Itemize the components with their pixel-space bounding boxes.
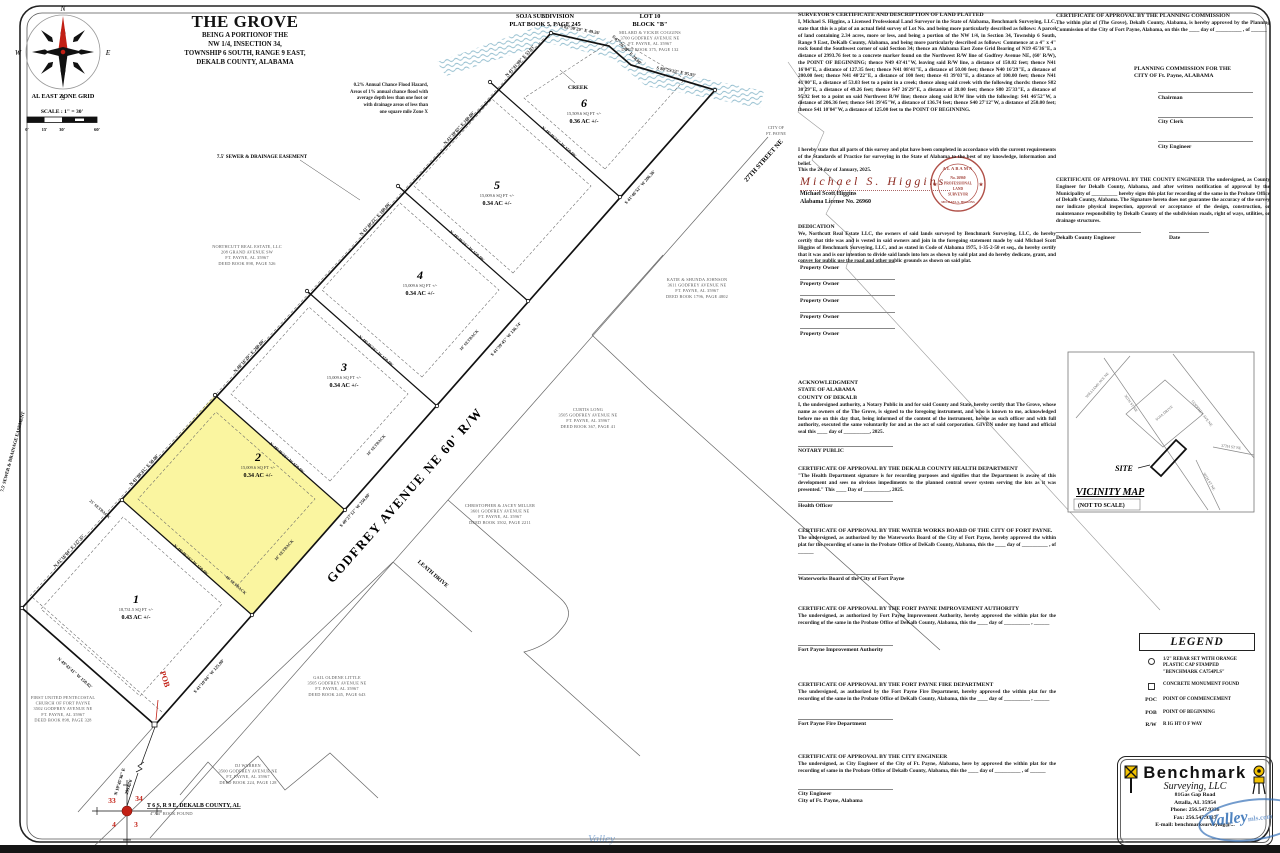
- property-owner-signatures: Property Owner Property Owner Property O…: [800, 262, 895, 337]
- svg-text:1: 1: [133, 592, 139, 606]
- svg-text:15,009.6 SQ FT +/-: 15,009.6 SQ FT +/-: [403, 283, 438, 289]
- svg-text:15': 15': [42, 127, 48, 132]
- svg-text:0.34 AC +/-: 0.34 AC +/-: [244, 473, 273, 479]
- svg-text:W: W: [15, 48, 22, 57]
- page-title: THE GROVE: [140, 12, 350, 32]
- svg-text:30': 30': [59, 127, 65, 132]
- svg-text:★: ★: [979, 182, 984, 188]
- svg-text:6: 6: [581, 96, 587, 110]
- svg-text:N 49°43'41" W 150.02': N 49°43'41" W 150.02': [57, 656, 94, 689]
- svg-text:10' SETBACK: 10' SETBACK: [365, 433, 387, 457]
- scale-bar: SCALE : 1" = 30' 0' 15' 30' 60': [25, 109, 100, 132]
- legend-item: POC POINT OF COMMENCEMENT: [1139, 697, 1255, 703]
- owner-label: NORTHCUTT REAL ESTATE, LLC208 GRAND AVEN…: [212, 244, 282, 267]
- legend-item: POB POINT OF BEGINNING: [1139, 710, 1255, 716]
- title-block: THE GROVE BEING A PORTIONOF THENW 1/4, I…: [140, 12, 350, 68]
- fire-dept-certificate: CERTIFICATE OF APPROVAL BY THE FORT PAYN…: [798, 682, 1056, 727]
- planning-commission-for: PLANNING COMMISSION FOR THE CITY OF Ft. …: [1134, 66, 1231, 81]
- legend-item: CONCRETE MONUMENT FOUND: [1139, 682, 1255, 691]
- svg-text:5: 5: [494, 178, 500, 192]
- legend-item: 1/2" REBAR SET WITH ORANGEPLASTIC CAP ST…: [1139, 657, 1255, 676]
- health-dept-certificate: CERTIFICATE OF APPROVAL BY THE DEKALB CO…: [798, 466, 1056, 509]
- svg-text:N 40°16'29" E 200.00': N 40°16'29" E 200.00': [232, 338, 265, 373]
- water-works-certificate: CERTIFICATE OF APPROVAL BY THE WATER WOR…: [798, 528, 1056, 582]
- survey-flag-icon: [1124, 765, 1138, 795]
- compass-rose: N S W E: [15, 4, 111, 102]
- svg-text:0.43 AC +/-: 0.43 AC +/-: [122, 615, 151, 621]
- svg-text:34: 34: [135, 794, 143, 803]
- svg-text:0.34 AC +/-: 0.34 AC +/-: [483, 201, 512, 207]
- svg-text:4: 4: [416, 268, 423, 282]
- soja-subdivision-label: SOJA SUBDIVISION: [516, 13, 574, 20]
- rebar-symbol: [1148, 658, 1155, 665]
- owner-label: GAIL OLDENE LITTLE3505 GODFREY AVENUE NE…: [308, 675, 367, 698]
- flood-hazard-note: 0.2% Annual Chance Flood Hazard,Areas of…: [320, 83, 428, 117]
- svg-text:4"X4" ROCK FOUND: 4"X4" ROCK FOUND: [150, 811, 193, 816]
- bearing-labels: N 49°43'41" W 150.02' N 41°16'04" E 127.…: [52, 24, 696, 695]
- plat-sheet: N S W E AL EAST ZONE GRID SCALE : 1" = 3…: [0, 0, 1280, 853]
- svg-text:N 48°49'56" W 150.00': N 48°49'56" W 150.00': [541, 125, 578, 158]
- section-num: 33: [108, 796, 116, 805]
- svg-text:MICHAEL S. HIGGINS: MICHAEL S. HIGGINS: [941, 200, 975, 204]
- owner-label: MILARD & VICKIE COGGINS3700 GODFREY AVEN…: [619, 30, 681, 53]
- watermark-fragment: Valley: [588, 833, 615, 845]
- surveyor-license: Alabama License No. 26960: [800, 198, 871, 206]
- svg-text:0.34 AC +/-: 0.34 AC +/-: [330, 383, 359, 389]
- svg-text:4: 4: [112, 820, 116, 829]
- vicinity-map: WILLIAMS AVE NE 36TH ST NE SOJA DRIVE GO…: [1068, 352, 1254, 512]
- section-corner-label: T 6 S, R 9 E, DEKALB COUNTY, AL: [147, 803, 241, 809]
- acknowledgment-section: ACKNOWLEDGMENT STATE OF ALABAMA COUNTY O…: [798, 380, 1056, 454]
- street-label-godfrey: GODFREY AVENUE NE 60' R/W: [324, 404, 486, 585]
- svg-text:25' SETBACK: 25' SETBACK: [88, 498, 112, 520]
- owner-label: CHRISTOPHER & JACEY MILLER3601 GODFREY A…: [465, 503, 535, 526]
- pob-label: POB: [158, 670, 172, 689]
- svg-text:N 48°49'56" W 150.00': N 48°49'56" W 150.00': [449, 229, 486, 262]
- planning-signature-lines: Chairman City Clerk City Engineer: [1158, 92, 1253, 150]
- svg-text:LAND: LAND: [953, 187, 964, 191]
- owner-label: FIRST UNITED PENTECOSTALCHURCH OF FORT P…: [31, 695, 95, 723]
- site-label: SITE: [1115, 464, 1133, 473]
- svg-text:3: 3: [134, 820, 138, 829]
- surveyor-signature: Michael S. Higgins: [800, 172, 950, 191]
- compass-label: AL EAST ZONE GRID: [32, 93, 95, 100]
- svg-text:0.36 AC +/-: 0.36 AC +/-: [570, 119, 599, 125]
- adjacent-owner-labels: MILARD & VICKIE COGGINS3700 GODFREY AVEN…: [31, 30, 728, 786]
- svg-text:15,009.6 SQ FT +/-: 15,009.6 SQ FT +/-: [480, 193, 515, 199]
- owner-label: KATIE & SHUNDA JOHNSON3611 GODFREY AVENU…: [666, 277, 728, 300]
- svg-text:15,509.6 SQ FT +/-: 15,509.6 SQ FT +/-: [567, 111, 602, 117]
- svg-text:SCALE : 1" = 30': SCALE : 1" = 30': [41, 109, 84, 115]
- easement-label: 7.5' SEWER & DRAINAGE EASEMENT: [217, 155, 308, 160]
- plat-drawing: N S W E AL EAST ZONE GRID SCALE : 1" = 3…: [0, 0, 1280, 853]
- section-heading: SURVEYOR'S CERTIFICATE AND DESCRIPTION O…: [798, 12, 1056, 19]
- total-station-icon: [1251, 764, 1267, 798]
- svg-text:SURVEYOR: SURVEYOR: [948, 193, 968, 197]
- owner-label: CURTIS LONG3505 GODFREY AVENUE NEFT. PAY…: [559, 407, 618, 430]
- legend: LEGEND 1/2" REBAR SET WITH ORANGEPLASTIC…: [1139, 633, 1255, 729]
- svg-text:15,009.6 SQ FT +/-: 15,009.6 SQ FT +/-: [327, 375, 362, 381]
- svg-text:N: N: [59, 4, 66, 13]
- creek-hatching: [437, 24, 764, 108]
- svg-text:0': 0': [25, 127, 29, 132]
- svg-text:0.34 AC +/-: 0.34 AC +/-: [406, 291, 435, 297]
- svg-text:No. 26960: No. 26960: [950, 176, 965, 180]
- svg-text:N 41°16'04" E 127.35': N 41°16'04" E 127.35': [52, 533, 85, 568]
- svg-text:E: E: [105, 48, 111, 57]
- monument-symbol: [1148, 683, 1155, 690]
- svg-text:60': 60': [94, 127, 100, 132]
- street-label-leath: LEATH DRIVE: [416, 559, 449, 589]
- scan-edge-bar: [0, 845, 1280, 853]
- svg-text:N 41°39'03" E 100.00': N 41°39'03" E 100.00': [442, 110, 475, 145]
- vicinity-title: VICINITY MAP: [1076, 487, 1145, 498]
- city-limit-label: CITY OF: [768, 125, 785, 130]
- legend-item: R/W R IG HT O F WAY: [1139, 722, 1255, 728]
- svg-text:N 48°49'56" W 150.00': N 48°49'56" W 150.00': [358, 334, 395, 367]
- svg-text:(NOT TO SCALE): (NOT TO SCALE): [1078, 502, 1125, 509]
- planning-commission-certificate: CERTIFICATE OF APPROVAL BY THE PLANNING …: [1056, 13, 1270, 34]
- surveyor-statement: I hereby state that all parts of this su…: [798, 147, 1056, 174]
- svg-text:18,731.5 SQ FT +/-: 18,731.5 SQ FT +/-: [119, 607, 154, 613]
- svg-text:FT. PAYNE: FT. PAYNE: [766, 131, 786, 136]
- improvement-authority-certificate: CERTIFICATE OF APPROVAL BY THE FORT PAYN…: [798, 606, 1056, 653]
- svg-text:3: 3: [340, 360, 347, 374]
- corner-monuments: [20, 31, 716, 727]
- creek-label: CREEK: [568, 85, 589, 91]
- surveyors-certificate: SURVEYOR'S CERTIFICATE AND DESCRIPTION O…: [798, 12, 1056, 114]
- svg-text:BLOCK "B": BLOCK "B": [633, 21, 668, 28]
- street-label-27th: 27TH STREET NE: [743, 138, 785, 184]
- owner-label: DJ WARREN3500 GODFREY AVENUE NEFT. PAYNE…: [219, 763, 278, 786]
- county-engineer-certificate: CERTIFICATE OF APPROVAL BY THE COUNTY EN…: [1056, 177, 1270, 241]
- svg-text:2: 2: [254, 450, 261, 464]
- city-engineer-certificate: CERTIFICATE OF APPROVAL BY THE CITY ENGI…: [798, 754, 1056, 804]
- easement-label-2: 7.5' SEWER & DRAINAGE EASEMENT: [0, 411, 26, 492]
- legend-title: LEGEND: [1139, 633, 1255, 651]
- subdivision-boundary: [22, 33, 715, 725]
- lot10-label: LOT 10: [640, 13, 661, 20]
- svg-text:2993.76': 2993.76': [124, 778, 134, 795]
- title-subtitle: BEING A PORTIONOF THENW 1/4, INSECTION 3…: [140, 32, 350, 68]
- dedication-section: DEDICATION We, Northcutt Real Estate LLC…: [798, 224, 1056, 265]
- svg-text:10' SETBACK: 10' SETBACK: [458, 328, 480, 352]
